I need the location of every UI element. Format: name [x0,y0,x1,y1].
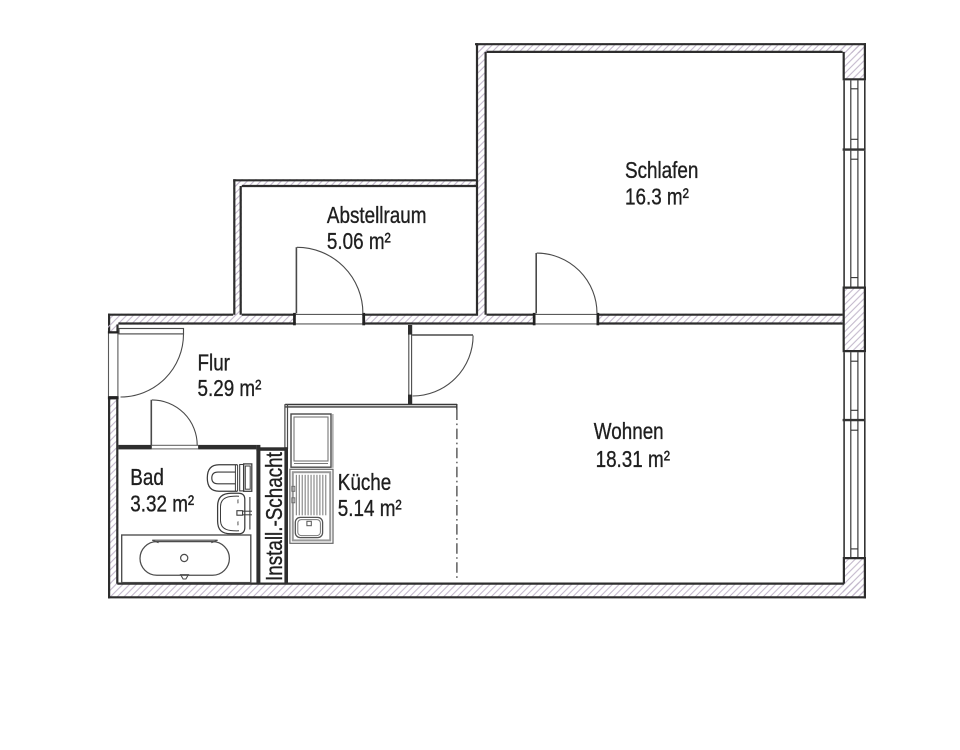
svg-text:18.31 m²: 18.31 m² [596,447,670,472]
svg-text:Install.-Schacht: Install.-Schacht [262,452,287,581]
svg-text:5.06 m²: 5.06 m² [327,229,391,254]
svg-text:Schlafen: Schlafen [625,158,698,183]
svg-text:Flur: Flur [198,351,230,376]
svg-text:5.29 m²: 5.29 m² [198,377,262,402]
svg-text:5.14 m²: 5.14 m² [338,496,402,521]
svg-text:16.3 m²: 16.3 m² [625,185,689,210]
svg-text:Bad: Bad [130,465,164,490]
svg-text:3.32 m²: 3.32 m² [130,492,194,517]
svg-text:Wohnen: Wohnen [594,419,664,444]
svg-text:Küche: Küche [338,470,391,495]
svg-text:Abstellraum: Abstellraum [327,203,427,228]
